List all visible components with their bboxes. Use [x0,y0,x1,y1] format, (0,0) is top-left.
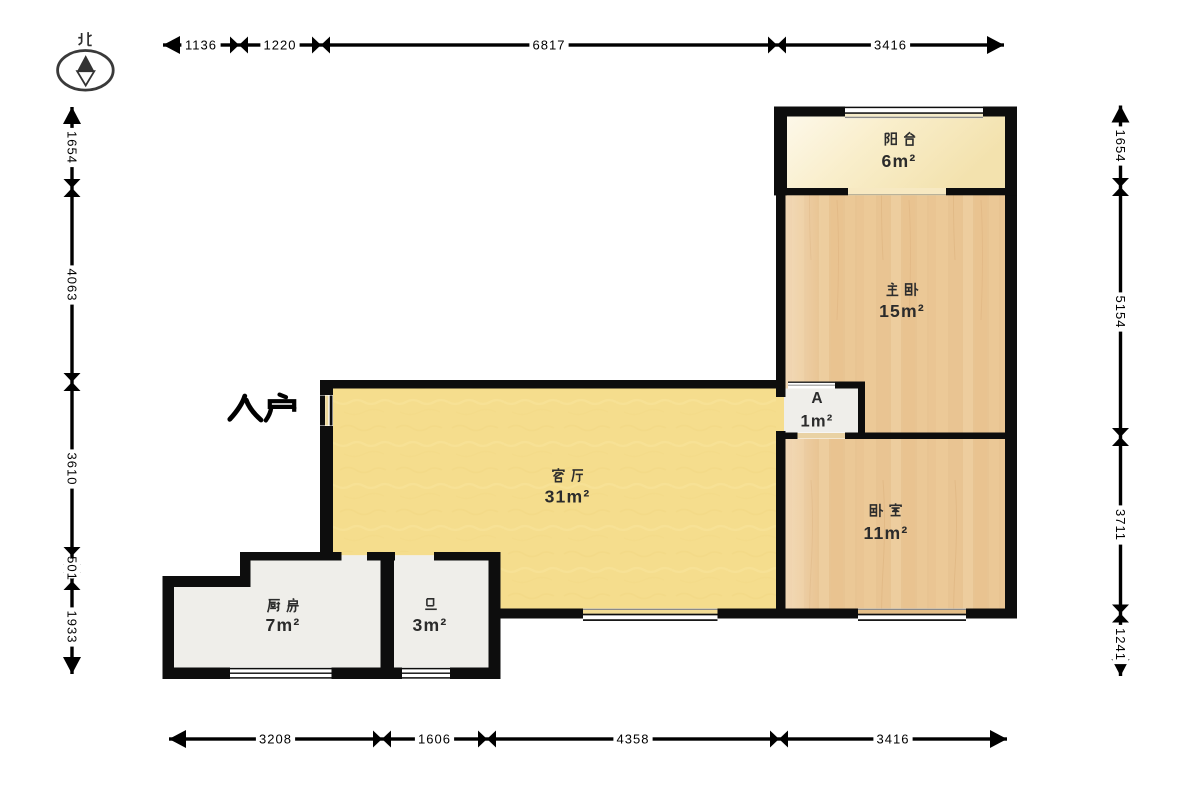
svg-text:3208: 3208 [259,732,292,747]
svg-text:1606: 1606 [418,732,451,747]
svg-text:3610: 3610 [65,453,80,486]
svg-text:5154: 5154 [1113,296,1128,329]
svg-text:1241: 1241 [1113,628,1128,661]
svg-text:3416: 3416 [877,732,910,747]
svg-text:7m²: 7m² [266,615,301,635]
svg-text:3m²: 3m² [413,615,448,635]
svg-text:3416: 3416 [874,38,907,53]
svg-text:1654: 1654 [1113,130,1128,163]
svg-text:1136: 1136 [185,38,217,53]
svg-text:6m²: 6m² [882,151,917,171]
svg-text:1220: 1220 [264,38,297,53]
svg-text:A: A [811,390,822,407]
svg-text:6817: 6817 [533,38,566,53]
svg-text:11m²: 11m² [864,523,909,543]
svg-text:4358: 4358 [617,732,650,747]
svg-text:1m²: 1m² [801,412,834,430]
svg-text:1933: 1933 [65,611,80,644]
svg-text:1654: 1654 [65,131,80,164]
svg-text:501: 501 [65,556,80,581]
svg-text:31m²: 31m² [545,487,591,507]
svg-text:4063: 4063 [65,269,80,302]
svg-text:15m²: 15m² [879,301,925,321]
svg-text:3711: 3711 [1113,509,1128,541]
